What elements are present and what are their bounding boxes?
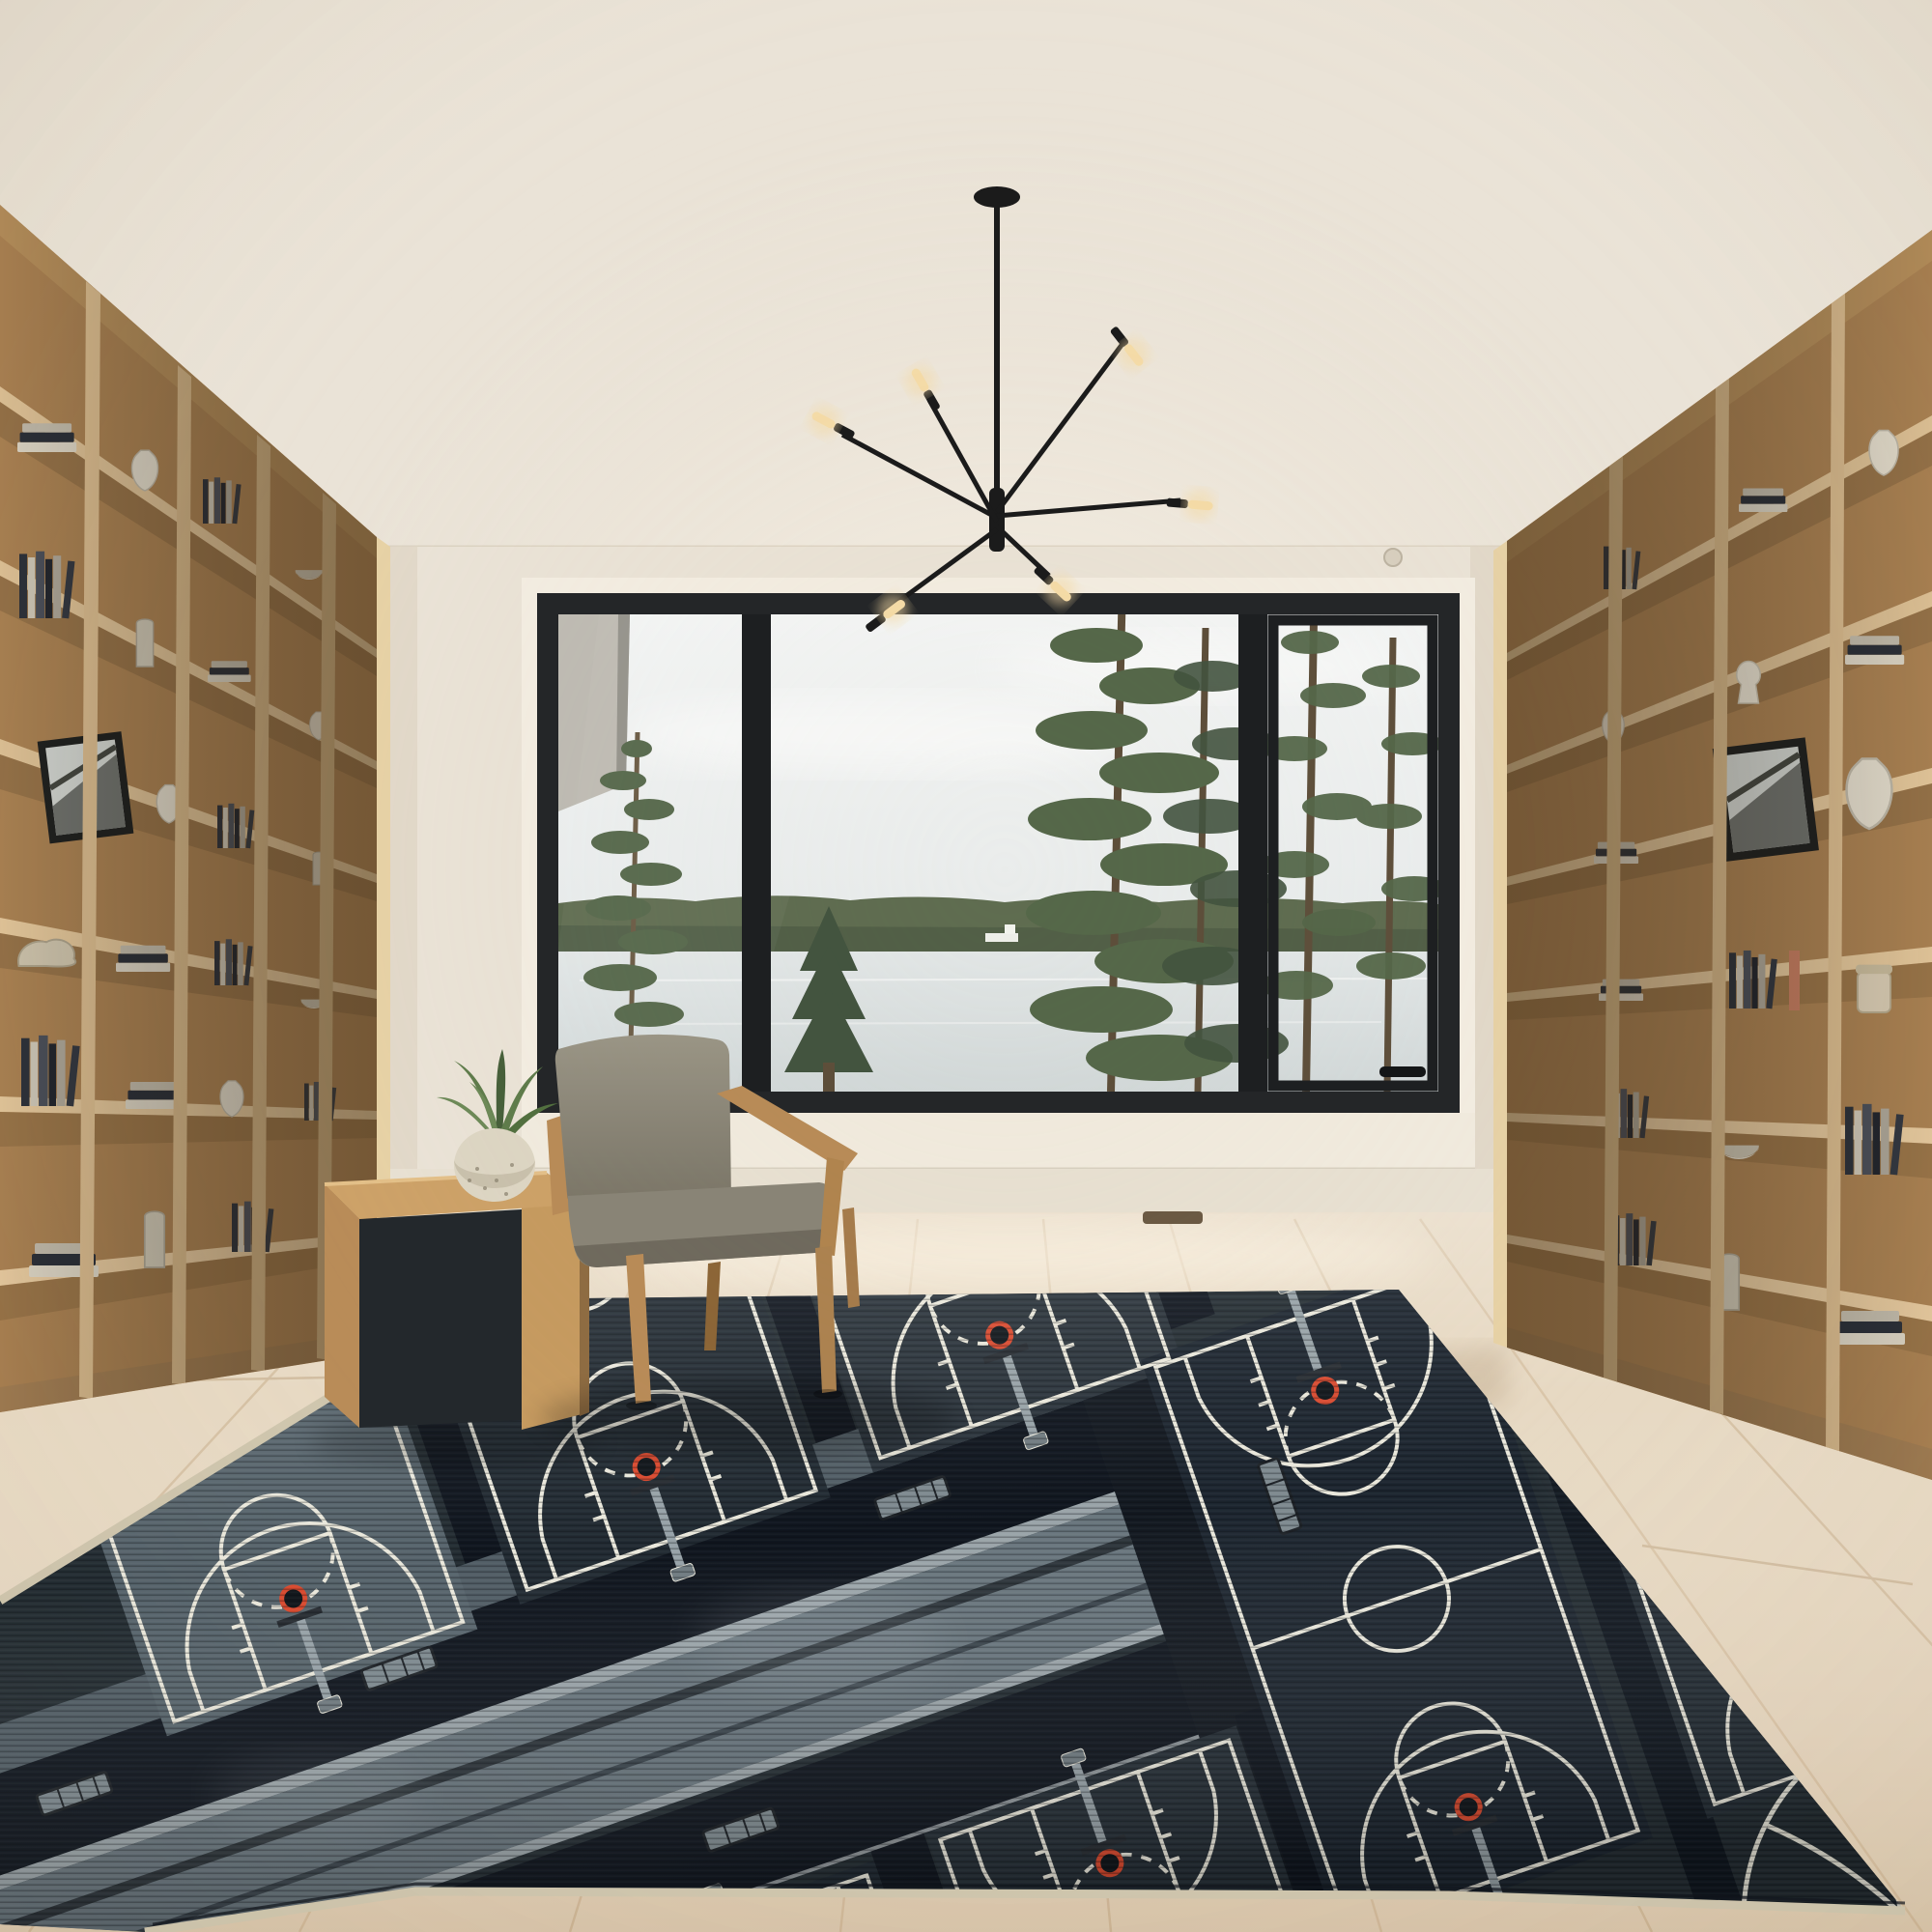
room-illustration (0, 0, 1932, 1932)
room-scene (0, 0, 1932, 1932)
vignette (0, 0, 1932, 1932)
